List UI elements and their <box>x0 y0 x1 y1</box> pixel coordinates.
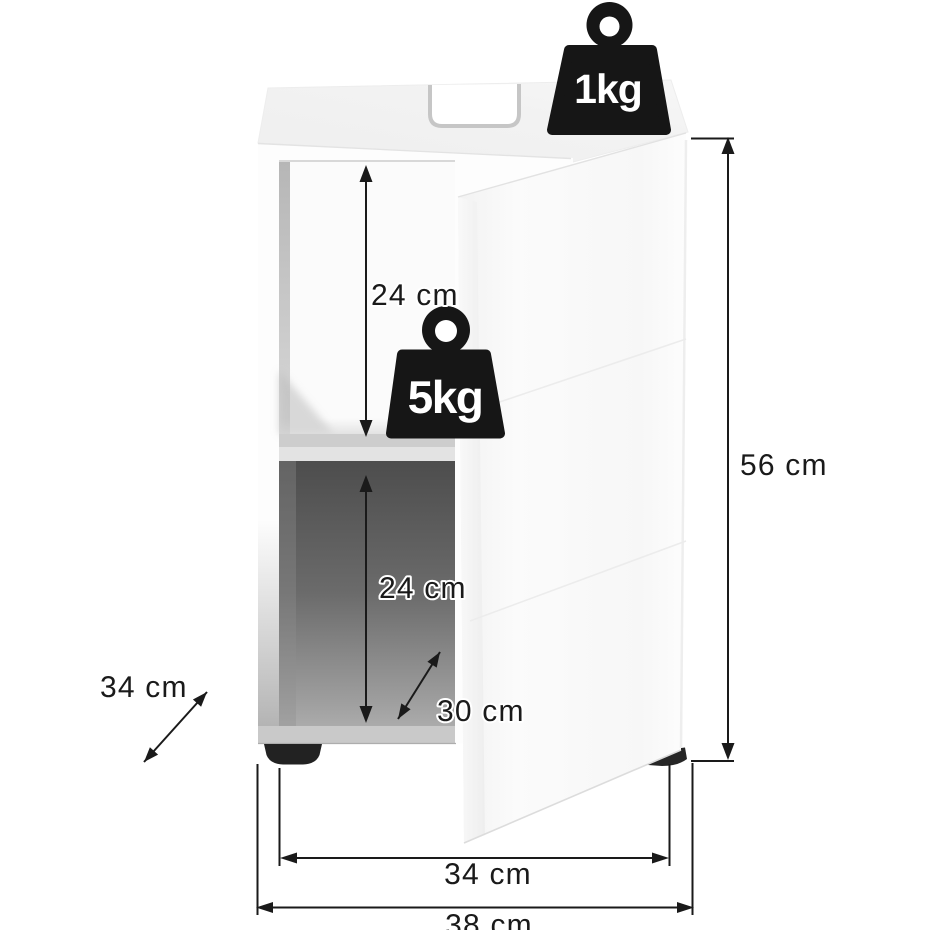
svg-text:56 cm: 56 cm <box>740 449 828 482</box>
svg-text:30 cm: 30 cm <box>437 695 525 728</box>
svg-text:38 cm: 38 cm <box>445 909 533 930</box>
svg-text:24 cm: 24 cm <box>379 572 467 605</box>
svg-text:34 cm: 34 cm <box>100 671 188 704</box>
svg-text:34 cm: 34 cm <box>444 858 532 891</box>
svg-text:24 cm: 24 cm <box>371 279 459 312</box>
svg-text:1kg: 1kg <box>574 66 642 112</box>
svg-text:5kg: 5kg <box>408 371 483 423</box>
